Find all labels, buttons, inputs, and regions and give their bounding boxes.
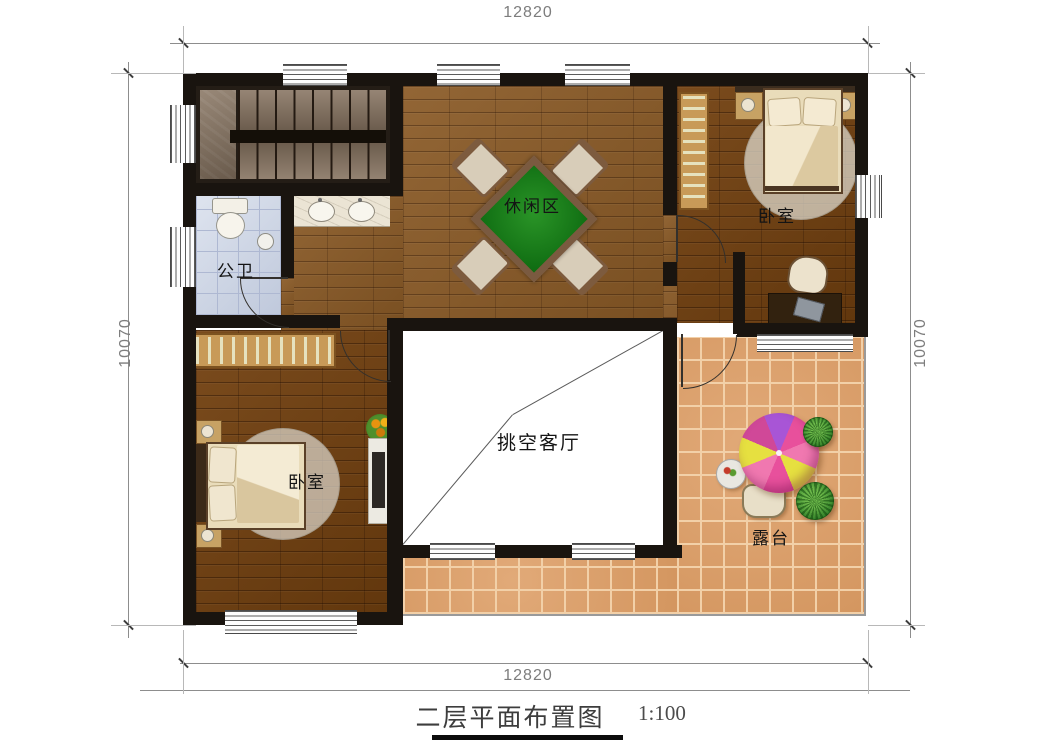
wall-stairs-bottom — [183, 183, 403, 196]
window-left-stairs — [170, 105, 196, 163]
lamp-left-bed-bottom — [201, 529, 214, 542]
vanity-sink-right — [348, 201, 375, 222]
window-top-2 — [437, 64, 500, 86]
dim-top-label: 12820 — [488, 4, 568, 22]
bed-right-pillow-1 — [767, 97, 802, 127]
dim-ext — [183, 630, 184, 694]
dim-left-label: 10070 — [117, 315, 135, 371]
door-leaf-bedroom-left — [388, 330, 390, 380]
toilet-bowl — [216, 212, 245, 239]
vanity-sink-left — [308, 201, 335, 222]
window-top-3 — [565, 64, 630, 86]
dim-bottom-line — [180, 663, 870, 664]
bed-right-footboard — [765, 186, 839, 191]
dim-top-line — [170, 43, 880, 44]
terrace-bush-bottom — [796, 482, 834, 520]
lamp-left-bed-top — [201, 425, 214, 438]
vanity-faucet-left — [318, 198, 322, 202]
room-label-bedroom-right: 卧室 — [758, 202, 796, 227]
window-bedroom-terrace — [757, 334, 853, 352]
room-label-bathroom: 公卫 — [217, 257, 255, 282]
dim-ext — [868, 625, 925, 626]
vanity-faucet-right — [358, 198, 362, 202]
window-bottom-bay — [225, 610, 357, 634]
parasol-center — [776, 450, 782, 456]
door-leaf-bedroom-right — [676, 215, 678, 262]
room-label-terrace: 露台 — [752, 524, 790, 549]
bed-right-pillow-2 — [802, 97, 837, 127]
window-void-1 — [430, 543, 495, 560]
wall-void-right — [663, 318, 677, 558]
wall-stairs-right — [390, 86, 403, 196]
sheet-line — [140, 690, 910, 691]
dim-ext — [183, 26, 184, 73]
dim-right-label: 10070 — [912, 315, 930, 371]
tv — [372, 452, 385, 508]
dim-right-line — [910, 62, 911, 638]
bathroom-pedestal-sink — [257, 233, 274, 250]
corridor-door-gap — [663, 215, 677, 262]
room-label-leisure: 休闲区 — [504, 192, 561, 217]
window-top-1 — [283, 64, 347, 86]
dim-ext — [111, 625, 196, 626]
dim-ext — [111, 73, 196, 74]
wall-bathroom-right — [281, 196, 294, 278]
lamp-right-bed-left — [741, 98, 755, 112]
terrace-railing-right — [864, 310, 866, 616]
terrace-floor-strip — [403, 558, 677, 614]
window-void-2 — [572, 543, 635, 560]
wall-hall-bedroom — [663, 86, 677, 215]
stair-flight-upper — [238, 90, 386, 130]
dim-ext — [868, 630, 869, 694]
bed-left-headboard — [196, 444, 206, 522]
room-label-bedroom-left: 卧室 — [288, 468, 326, 493]
wardrobe-left-bedroom — [192, 333, 336, 368]
window-left-bathroom — [170, 227, 196, 287]
plan-title: 二层平面布置图 — [395, 698, 625, 734]
floor-plan: 休闲区 卧室 公卫 卧室 挑空客厅 露台 12820 12820 10070 1… — [0, 0, 1060, 749]
dim-ext — [868, 73, 925, 74]
wardrobe-right-bedroom — [679, 92, 709, 210]
dim-ext — [868, 26, 869, 73]
wall-corridor-bedroom — [733, 252, 745, 334]
dim-bottom-label: 12820 — [488, 667, 568, 685]
room-label-void: 挑空客厅 — [497, 428, 581, 455]
bed-left-pillow-2 — [208, 484, 237, 521]
window-right-bedroom — [855, 175, 882, 218]
terrace-railing-bottom — [403, 614, 866, 616]
bed-right-duvet — [766, 126, 838, 186]
stair-flight-lower — [238, 143, 386, 179]
plan-title-underline — [432, 735, 623, 740]
stair-mid-stringer — [230, 130, 386, 143]
door-leaf-terrace — [681, 334, 683, 387]
terrace-bush-top — [803, 417, 833, 447]
plan-scale: 1:100 — [638, 701, 686, 726]
bed-left-pillow-1 — [208, 446, 237, 483]
wall-void-top — [387, 318, 677, 331]
terrace-table-items — [723, 465, 737, 479]
wall-hall-bedroom-stub — [663, 262, 677, 286]
